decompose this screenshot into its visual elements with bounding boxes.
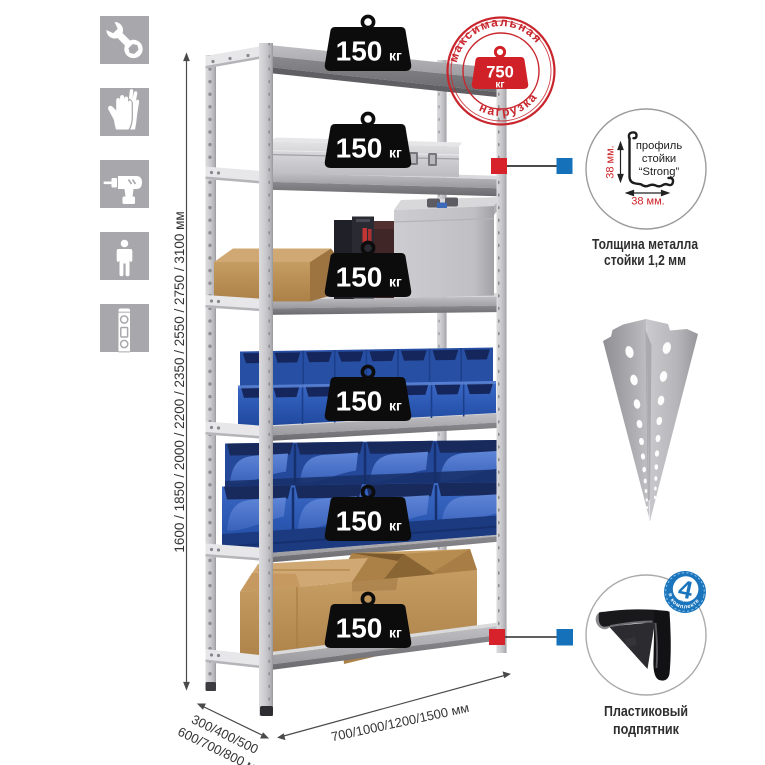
- svg-text:стойки 1,2 мм: стойки 1,2 мм: [604, 252, 686, 269]
- svg-text:Пластиковый: Пластиковый: [604, 703, 688, 720]
- svg-text:150: 150: [336, 36, 383, 67]
- svg-text:“Strong”: “Strong”: [639, 166, 680, 178]
- svg-text:подпятник: подпятник: [613, 721, 679, 738]
- svg-text:1600 / 1850 / 2000 / 2200 / 23: 1600 / 1850 / 2000 / 2200 / 2350 / 2550 …: [172, 211, 187, 552]
- svg-text:стойки: стойки: [642, 153, 676, 165]
- svg-text:кг: кг: [389, 625, 402, 641]
- svg-text:150: 150: [336, 386, 383, 417]
- svg-text:150: 150: [336, 262, 383, 293]
- svg-text:кг: кг: [389, 518, 402, 534]
- svg-text:38 мм.: 38 мм.: [605, 145, 617, 178]
- svg-text:700/1000/1200/1500 мм: 700/1000/1200/1500 мм: [330, 700, 471, 744]
- svg-text:кг: кг: [389, 274, 402, 290]
- svg-text:150: 150: [336, 506, 383, 537]
- svg-text:38 мм.: 38 мм.: [631, 196, 664, 208]
- svg-text:кг: кг: [389, 398, 402, 414]
- svg-text:Толщина металла: Толщина металла: [592, 236, 699, 253]
- svg-text:150: 150: [336, 133, 383, 164]
- svg-text:кг: кг: [495, 80, 504, 91]
- svg-text:кг: кг: [389, 48, 402, 64]
- svg-text:кг: кг: [389, 145, 402, 161]
- svg-text:профиль: профиль: [636, 140, 682, 152]
- svg-text:150: 150: [336, 613, 383, 644]
